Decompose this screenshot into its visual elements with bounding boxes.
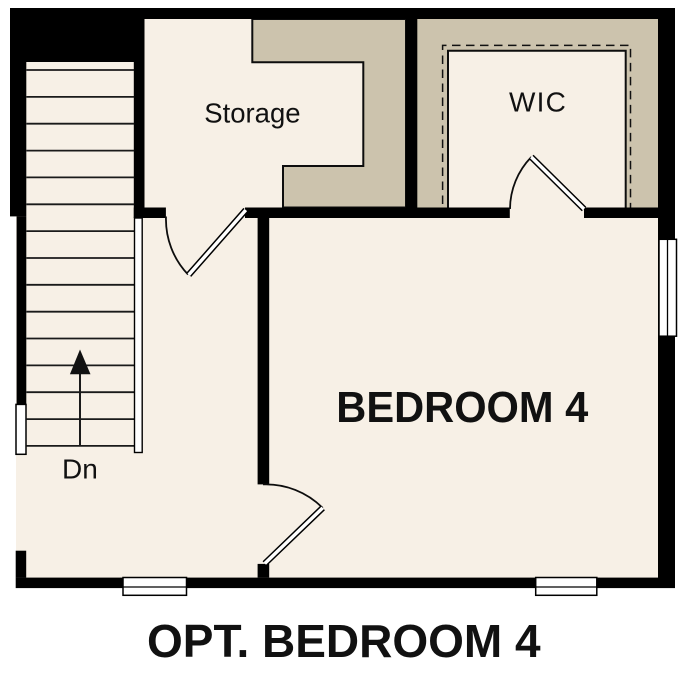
svg-text:Storage: Storage [204, 97, 300, 128]
svg-text:OPT. BEDROOM 4: OPT. BEDROOM 4 [147, 615, 541, 667]
svg-text:WIC: WIC [509, 87, 567, 118]
svg-text:BEDROOM 4: BEDROOM 4 [336, 384, 588, 432]
svg-text:Dn: Dn [62, 454, 98, 485]
